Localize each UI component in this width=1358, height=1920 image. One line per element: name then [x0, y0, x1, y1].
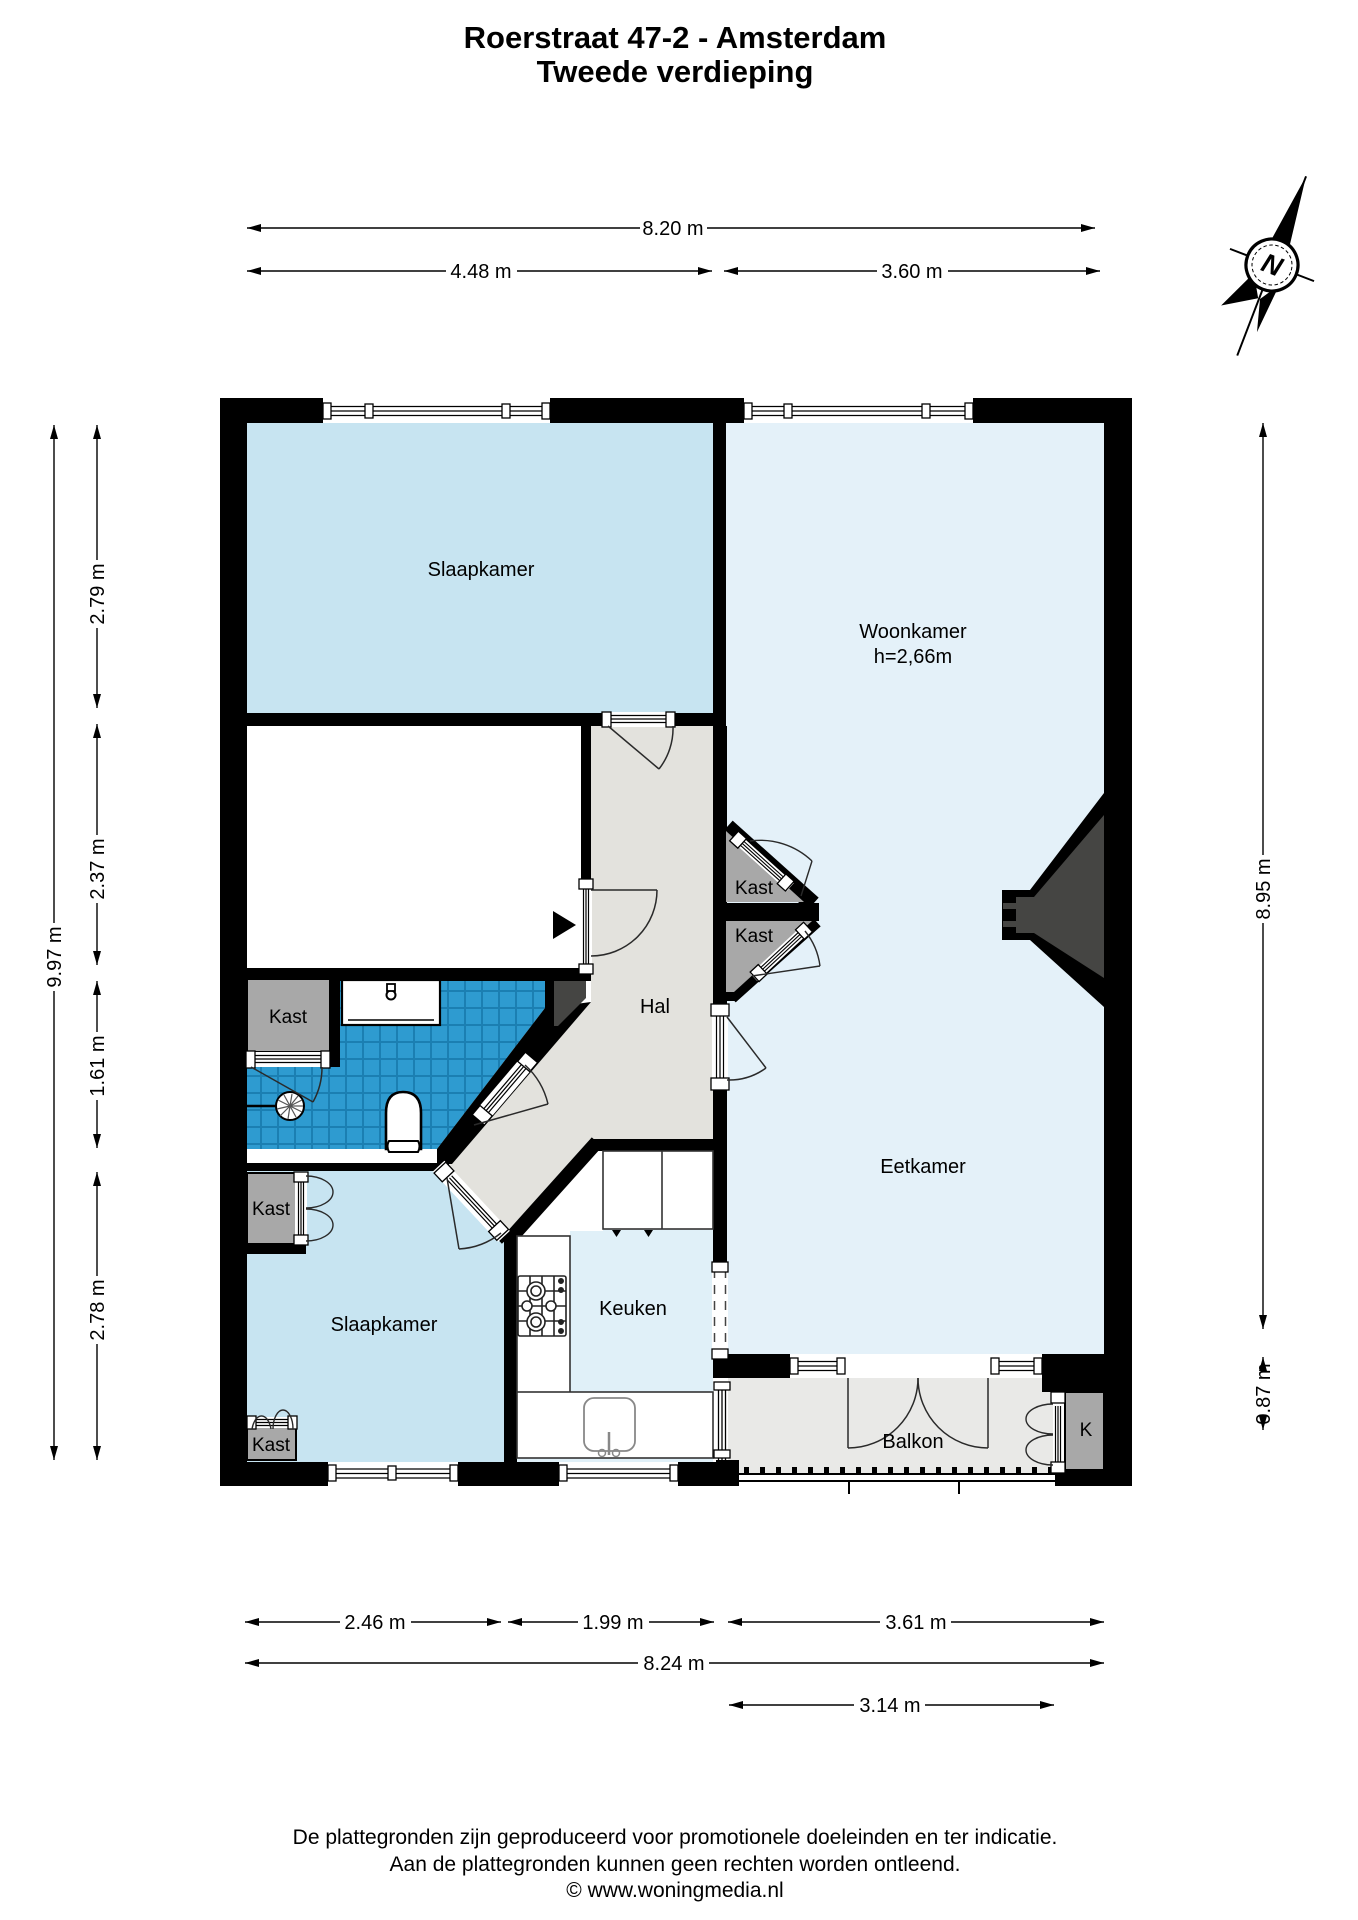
svg-text:© www.woningmedia.nl: © www.woningmedia.nl: [566, 1879, 783, 1902]
svg-text:Keuken: Keuken: [599, 1298, 667, 1320]
svg-text:Tweede verdieping: Tweede verdieping: [537, 54, 814, 89]
svg-text:2.37 m: 2.37 m: [87, 838, 109, 899]
svg-text:K: K: [1080, 1420, 1093, 1441]
svg-text:Woonkamer: Woonkamer: [859, 621, 967, 643]
svg-text:4.48 m: 4.48 m: [450, 261, 511, 283]
svg-text:3.60 m: 3.60 m: [881, 261, 942, 283]
svg-text:8.20 m: 8.20 m: [642, 218, 703, 240]
svg-text:2.78 m: 2.78 m: [87, 1279, 109, 1340]
svg-text:De plattegronden zijn geproduc: De plattegronden zijn geproduceerd voor …: [293, 1826, 1058, 1849]
svg-text:Kast: Kast: [252, 1435, 291, 1456]
svg-text:1.99 m: 1.99 m: [582, 1612, 643, 1634]
svg-text:3.14 m: 3.14 m: [859, 1695, 920, 1717]
svg-text:Slaapkamer: Slaapkamer: [331, 1314, 438, 1336]
svg-text:8.24 m: 8.24 m: [643, 1653, 704, 1675]
svg-text:9.97 m: 9.97 m: [44, 926, 66, 987]
svg-text:Balkon: Balkon: [882, 1431, 943, 1453]
svg-text:Hal: Hal: [640, 996, 670, 1018]
svg-text:Kast: Kast: [269, 1007, 308, 1028]
svg-text:2.79 m: 2.79 m: [87, 563, 109, 624]
svg-text:1.61 m: 1.61 m: [87, 1035, 109, 1096]
svg-text:2.46 m: 2.46 m: [344, 1612, 405, 1634]
svg-text:8.95 m: 8.95 m: [1253, 858, 1275, 919]
svg-text:Kast: Kast: [735, 926, 774, 947]
svg-text:Eetkamer: Eetkamer: [880, 1156, 966, 1178]
svg-text:Kast: Kast: [252, 1199, 291, 1220]
svg-text:Slaapkamer: Slaapkamer: [428, 559, 535, 581]
svg-text:0.87 m: 0.87 m: [1253, 1363, 1275, 1424]
svg-text:Kast: Kast: [735, 878, 774, 899]
svg-text:h=2,66m: h=2,66m: [874, 646, 952, 668]
svg-text:Roerstraat 47-2 - Amsterdam: Roerstraat 47-2 - Amsterdam: [464, 20, 887, 55]
svg-text:Aan de plattegronden kunnen ge: Aan de plattegronden kunnen geen rechten…: [390, 1853, 961, 1876]
svg-text:3.61 m: 3.61 m: [885, 1612, 946, 1634]
